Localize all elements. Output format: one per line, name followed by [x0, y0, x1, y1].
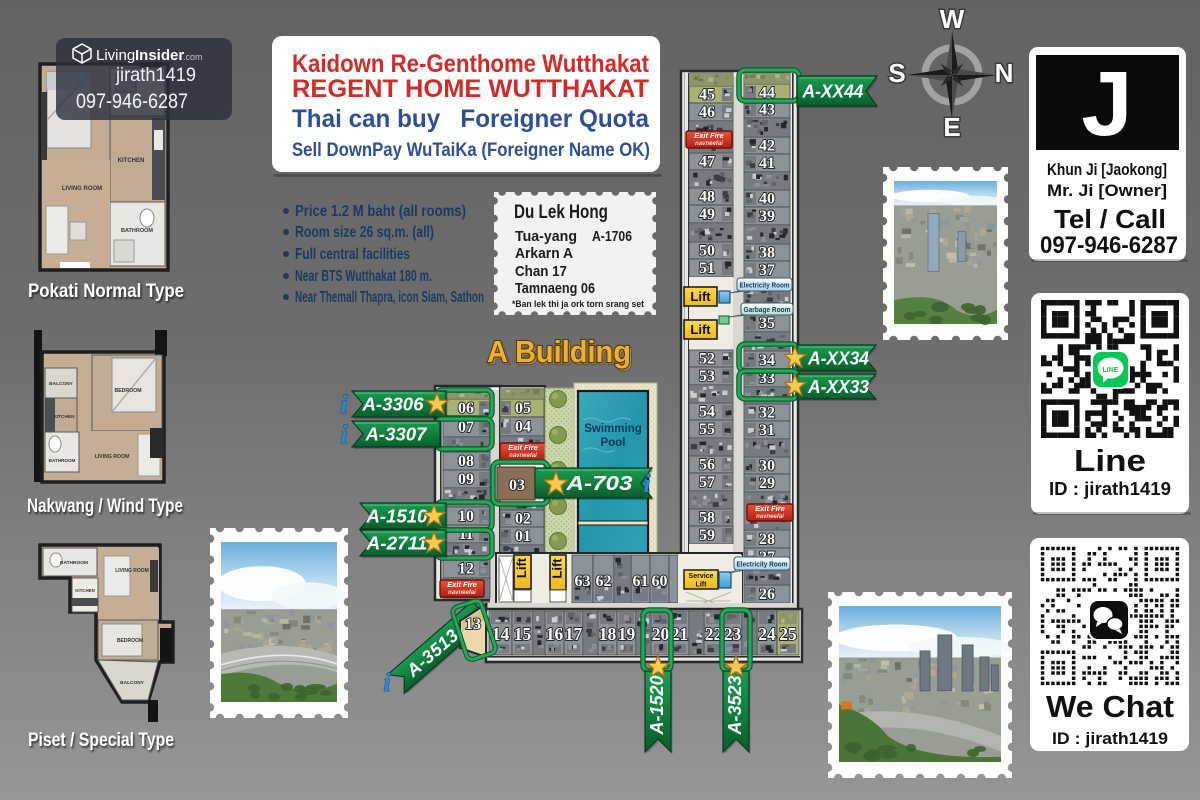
svg-text:Khun Ji [Jaokong]: Khun Ji [Jaokong]: [1047, 161, 1167, 179]
svg-text:Nakwang / Wind Type: Nakwang / Wind Type: [27, 495, 183, 517]
svg-text:A-1706: A-1706: [592, 228, 632, 245]
svg-text:097-946-6287: 097-946-6287: [76, 90, 188, 113]
svg-text:Sell DownPay WuTaiKa (Foreigne: Sell DownPay WuTaiKa (Foreigner Name OK): [292, 140, 650, 161]
svg-text:Piset / Special Type: Piset / Special Type: [28, 729, 174, 751]
svg-text:Tamnaeng 06: Tamnaeng 06: [515, 280, 595, 297]
svg-text:Room size 26 sq.m. (all): Room size 26 sq.m. (all): [295, 224, 434, 241]
svg-text:Thai can buy Foreigner Quota: Thai can buy Foreigner Quota: [292, 105, 650, 133]
svg-text:Price 1.2 M baht (all rooms): Price 1.2 M baht (all rooms): [295, 203, 466, 220]
svg-text:Living: Living: [96, 47, 135, 64]
svg-text:Du Lek Hong: Du Lek Hong: [514, 202, 608, 223]
svg-text:ID : jirath1419: ID : jirath1419: [1052, 729, 1168, 748]
svg-text:A Building: A Building: [487, 334, 631, 369]
svg-text:Arkarn A: Arkarn A: [515, 245, 573, 262]
svg-text:Near BTS Wutthakat 180 m.: Near BTS Wutthakat 180 m.: [295, 268, 432, 285]
svg-text:Line: Line: [1074, 443, 1146, 478]
svg-text:Mr. Ji [Owner]: Mr. Ji [Owner]: [1047, 182, 1167, 200]
svg-text:LINE: LINE: [1103, 367, 1119, 374]
svg-text:Full central facilities: Full central facilities: [295, 246, 410, 263]
svg-text:Insider: Insider: [135, 47, 184, 64]
svg-text:*Ban lek thi ja ork torn srang: *Ban lek thi ja ork torn srang set: [512, 299, 644, 309]
svg-text:.com: .com: [183, 52, 203, 62]
svg-text:J: J: [1081, 53, 1132, 155]
svg-text:REGENT HOME WUTTHAKAT: REGENT HOME WUTTHAKAT: [292, 75, 649, 103]
svg-text:097-946-6287: 097-946-6287: [1040, 232, 1178, 259]
svg-text:Near Themall Thapra, icon Siam: Near Themall Thapra, icon Siam, Sathon: [295, 289, 484, 306]
svg-text:Pokati Normal Type: Pokati Normal Type: [28, 280, 184, 302]
svg-text:Tua-yang: Tua-yang: [515, 228, 577, 245]
svg-text:We Chat: We Chat: [1046, 689, 1174, 724]
svg-text:jirath1419: jirath1419: [115, 65, 196, 86]
svg-text:ID : jirath1419: ID : jirath1419: [1049, 479, 1171, 499]
svg-text:Chan 17: Chan 17: [515, 263, 567, 280]
svg-text:Tel / Call: Tel / Call: [1054, 204, 1166, 234]
svg-text:Kaidown Re-Genthome Wutthakat: Kaidown Re-Genthome Wutthakat: [292, 50, 650, 78]
